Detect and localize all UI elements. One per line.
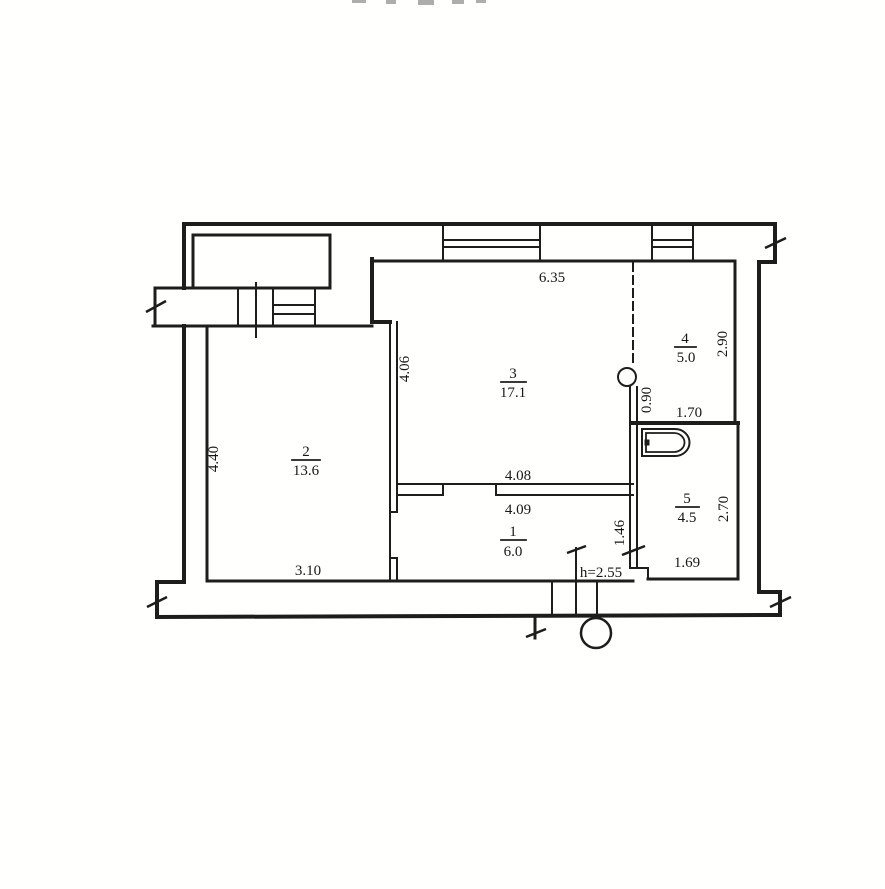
dim-room1-top-width: 4.09 [505, 502, 531, 518]
dim-bath-wall-width: 1.70 [676, 405, 702, 421]
room3-left-wall-upper [372, 259, 390, 322]
entry-wall-window [273, 288, 315, 326]
cropped-title-fragment [352, 0, 486, 5]
bathtub-tap [645, 440, 650, 446]
room3-area: 17.1 [500, 385, 526, 401]
room-label-2: 2 13.6 [292, 444, 320, 479]
room-label-3: 3 17.1 [500, 366, 526, 401]
dim-room4-right-height: 2.90 [715, 331, 731, 357]
room1-area: 6.0 [504, 544, 523, 560]
exterior-wall-bottom [157, 615, 780, 617]
room-label-5: 5 4.5 [676, 491, 699, 526]
floor-plan-drawing: 2 13.6 3 17.1 1 6.0 4 5.0 5 4.5 6.35 4.0… [0, 0, 885, 889]
window-room3 [443, 227, 540, 260]
dim-duct-wall-height: 0.90 [639, 387, 655, 413]
party-wall-stub-left [155, 288, 195, 326]
duct-column-symbol [618, 368, 636, 386]
dimension-labels: 6.35 4.06 4.40 3.10 4.08 4.09 1.46 2.90 … [206, 270, 732, 581]
wall-break-ticks [146, 238, 791, 637]
room1-number: 1 [509, 524, 517, 540]
room3-number: 3 [509, 366, 517, 382]
bathtub [642, 429, 690, 456]
room5-area: 4.5 [678, 510, 697, 526]
exterior-walls [155, 224, 780, 638]
exterior-wall-right [759, 262, 780, 615]
sewer-pipe-circle-symbol [581, 618, 611, 648]
dim-room3-bottom-width: 4.08 [505, 468, 531, 484]
dim-room2-left-height: 4.40 [206, 446, 222, 472]
niche-top-left [193, 235, 330, 288]
dim-room3-left-height: 4.06 [397, 355, 413, 382]
room5-number: 5 [683, 491, 691, 507]
room2-right-wall [390, 322, 397, 580]
dim-room1-right-height: 1.46 [612, 519, 628, 546]
room-label-1: 1 6.0 [501, 524, 526, 560]
dim-ceiling-height-note: h=2.55 [580, 565, 622, 581]
room2-number: 2 [302, 444, 310, 460]
room-label-4: 4 5.0 [675, 331, 696, 366]
room4-area: 5.0 [677, 350, 696, 366]
room4-number: 4 [681, 331, 689, 347]
dim-room5-right-height: 2.70 [716, 496, 732, 522]
scanned-floor-plan-page: { "colors": { "ink": "#1d1d1b", "paper":… [0, 0, 885, 889]
room3-room1-wall [397, 484, 633, 495]
dim-top-width: 6.35 [539, 270, 565, 286]
dimension-tick-room1-right [622, 546, 645, 555]
window-room4 [652, 227, 693, 260]
dim-room2-bottom-width: 3.10 [295, 563, 321, 579]
dim-room5-bottom-width: 1.69 [674, 555, 700, 571]
windows-top-wall [443, 227, 693, 260]
room2-area: 13.6 [293, 463, 320, 479]
